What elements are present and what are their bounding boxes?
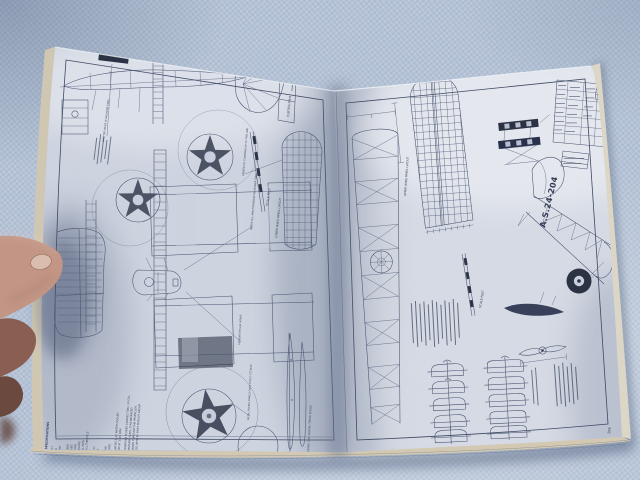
finger-knuckle bbox=[0, 318, 36, 377]
photo-open-book-of-aircraft-drawings: CURTISS PW-8 bbox=[0, 0, 640, 480]
finger-deep-shadow bbox=[0, 417, 15, 444]
book-photo-svg: CURTISS PW-8 bbox=[0, 0, 640, 480]
finger-shadowed bbox=[0, 376, 23, 417]
gutter-shadow bbox=[328, 84, 348, 458]
